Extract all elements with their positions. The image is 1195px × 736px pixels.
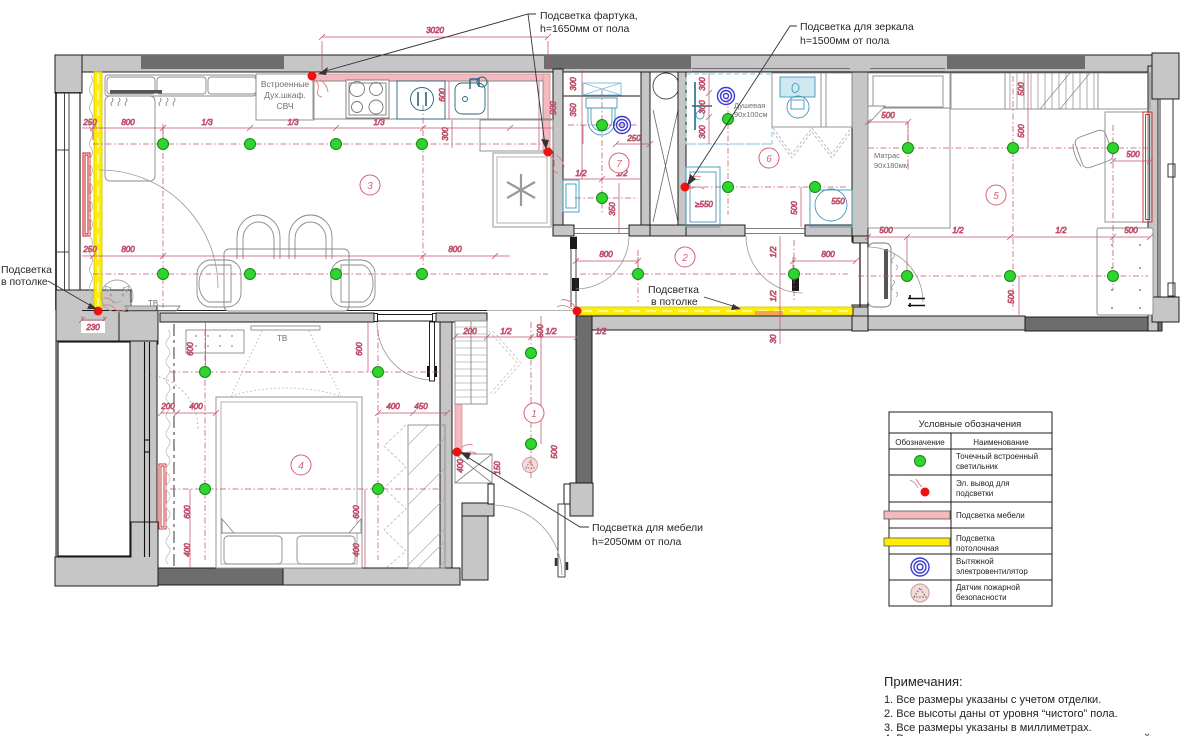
svg-text:500: 500 <box>536 324 545 338</box>
svg-text:Матрас: Матрас <box>874 151 900 160</box>
svg-text:30: 30 <box>769 334 778 343</box>
svg-text:1. Все размеры указаны с учето: 1. Все размеры указаны с учетом отделки. <box>884 694 1101 706</box>
svg-text:1/2: 1/2 <box>545 327 557 336</box>
svg-text:Датчик пожарной: Датчик пожарной <box>956 583 1020 592</box>
svg-text:400: 400 <box>456 459 465 473</box>
svg-text:1/3: 1/3 <box>373 118 385 127</box>
svg-text:500: 500 <box>1017 124 1026 138</box>
svg-text:200: 200 <box>160 402 175 411</box>
svg-text:7: 7 <box>616 159 622 170</box>
svg-text:500: 500 <box>550 445 559 459</box>
svg-text:h=2050мм от пола: h=2050мм от пола <box>592 536 681 548</box>
svg-text:1/2: 1/2 <box>769 290 778 302</box>
svg-text:электровентилятор: электровентилятор <box>956 567 1028 576</box>
svg-text:ТВ: ТВ <box>148 299 158 308</box>
svg-text:1/2: 1/2 <box>1055 226 1067 235</box>
svg-text:300: 300 <box>441 127 450 141</box>
svg-text:Наименование: Наименование <box>973 438 1029 447</box>
svg-text:Подсветка: Подсветка <box>956 534 995 543</box>
svg-text:800: 800 <box>821 250 835 259</box>
svg-text:500: 500 <box>790 201 799 215</box>
svg-text:h=1650мм от пола: h=1650мм от пола <box>540 23 629 35</box>
svg-text:Подсветка для мебели: Подсветка для мебели <box>592 522 703 534</box>
svg-text:1/3: 1/3 <box>287 118 299 127</box>
svg-text:300: 300 <box>569 77 578 91</box>
svg-text:потолочная: потолочная <box>956 544 999 553</box>
svg-text:Вытяжной: Вытяжной <box>956 557 994 566</box>
svg-text:600: 600 <box>355 342 364 356</box>
svg-text:Эл. вывод для: Эл. вывод для <box>956 479 1010 488</box>
svg-text:800: 800 <box>121 118 135 127</box>
svg-text:3020: 3020 <box>426 26 444 35</box>
svg-text:подсветки: подсветки <box>956 489 993 498</box>
svg-text:Условные обозначения: Условные обозначения <box>919 419 1022 430</box>
svg-text:безопасности: безопасности <box>956 593 1007 602</box>
svg-text:4: 4 <box>298 461 304 472</box>
svg-text:Встроенные: Встроенные <box>261 79 309 89</box>
svg-text:350: 350 <box>608 202 617 216</box>
svg-text:СВЧ: СВЧ <box>276 101 293 111</box>
svg-text:350: 350 <box>569 103 578 117</box>
svg-text:Примечания:: Примечания: <box>884 674 963 689</box>
svg-text:800: 800 <box>599 250 613 259</box>
svg-text:600: 600 <box>183 505 192 519</box>
svg-text:800: 800 <box>121 245 135 254</box>
svg-text:500: 500 <box>879 226 893 235</box>
svg-text:Подсветка мебели: Подсветка мебели <box>956 511 1025 520</box>
svg-text:450: 450 <box>414 402 428 411</box>
svg-text:1/2: 1/2 <box>769 246 778 258</box>
svg-text:1/2: 1/2 <box>952 226 964 235</box>
svg-text:≥550: ≥550 <box>695 200 713 209</box>
svg-text:200: 200 <box>462 327 477 336</box>
svg-text:1/2: 1/2 <box>595 327 607 336</box>
svg-text:300: 300 <box>698 77 707 91</box>
svg-text:Подсветка для зеркала: Подсветка для зеркала <box>800 21 914 33</box>
svg-text:светильник: светильник <box>956 462 998 471</box>
svg-text:300: 300 <box>698 125 707 139</box>
svg-text:400: 400 <box>189 402 203 411</box>
svg-text:Подсветка: Подсветка <box>648 284 699 296</box>
svg-text:1/2: 1/2 <box>575 169 587 178</box>
svg-text:800: 800 <box>448 245 462 254</box>
svg-text:Подсветка фартука,: Подсветка фартука, <box>540 10 638 22</box>
svg-text:600: 600 <box>438 88 447 102</box>
svg-text:2: 2 <box>681 253 688 264</box>
svg-text:в потолке: в потолке <box>1 276 48 288</box>
svg-text:Обозначение: Обозначение <box>895 438 945 447</box>
svg-text:1/2: 1/2 <box>500 327 512 336</box>
svg-text:230: 230 <box>85 323 100 332</box>
svg-text:250: 250 <box>82 245 97 254</box>
svg-text:600: 600 <box>186 342 195 356</box>
svg-text:300: 300 <box>698 100 707 114</box>
svg-text:400: 400 <box>352 543 361 557</box>
svg-text:550: 550 <box>831 197 845 206</box>
svg-text:90х180мм: 90х180мм <box>874 161 909 170</box>
svg-text:250: 250 <box>82 118 97 127</box>
svg-text:1: 1 <box>531 409 537 420</box>
svg-text:150: 150 <box>493 461 502 475</box>
svg-text:h=1500мм от пола: h=1500мм от пола <box>800 35 889 47</box>
svg-text:ТВ: ТВ <box>277 334 287 343</box>
svg-text:400: 400 <box>183 543 192 557</box>
svg-text:980: 980 <box>549 101 558 115</box>
svg-text:600: 600 <box>352 505 361 519</box>
svg-text:3: 3 <box>367 181 373 192</box>
svg-text:400: 400 <box>386 402 400 411</box>
svg-text:250: 250 <box>626 134 641 143</box>
svg-text:1/3: 1/3 <box>201 118 213 127</box>
svg-text:в потолке: в потолке <box>651 296 698 308</box>
svg-text:2. Все высоты даны от уровня “: 2. Все высоты даны от уровня “чистого” п… <box>884 708 1118 720</box>
svg-text:500: 500 <box>881 111 895 120</box>
svg-text:Дух.шкаф.: Дух.шкаф. <box>264 90 306 100</box>
svg-text:Точечный встроенный: Точечный встроенный <box>956 452 1038 461</box>
svg-text:5: 5 <box>993 191 999 202</box>
svg-text:6: 6 <box>766 154 772 165</box>
svg-text:500: 500 <box>1124 226 1138 235</box>
svg-text:500: 500 <box>1017 82 1026 96</box>
svg-text:Подсветка: Подсветка <box>1 264 52 276</box>
svg-text:500: 500 <box>1126 150 1140 159</box>
svg-text:90х100см: 90х100см <box>734 110 768 119</box>
svg-text:500: 500 <box>1007 290 1016 304</box>
